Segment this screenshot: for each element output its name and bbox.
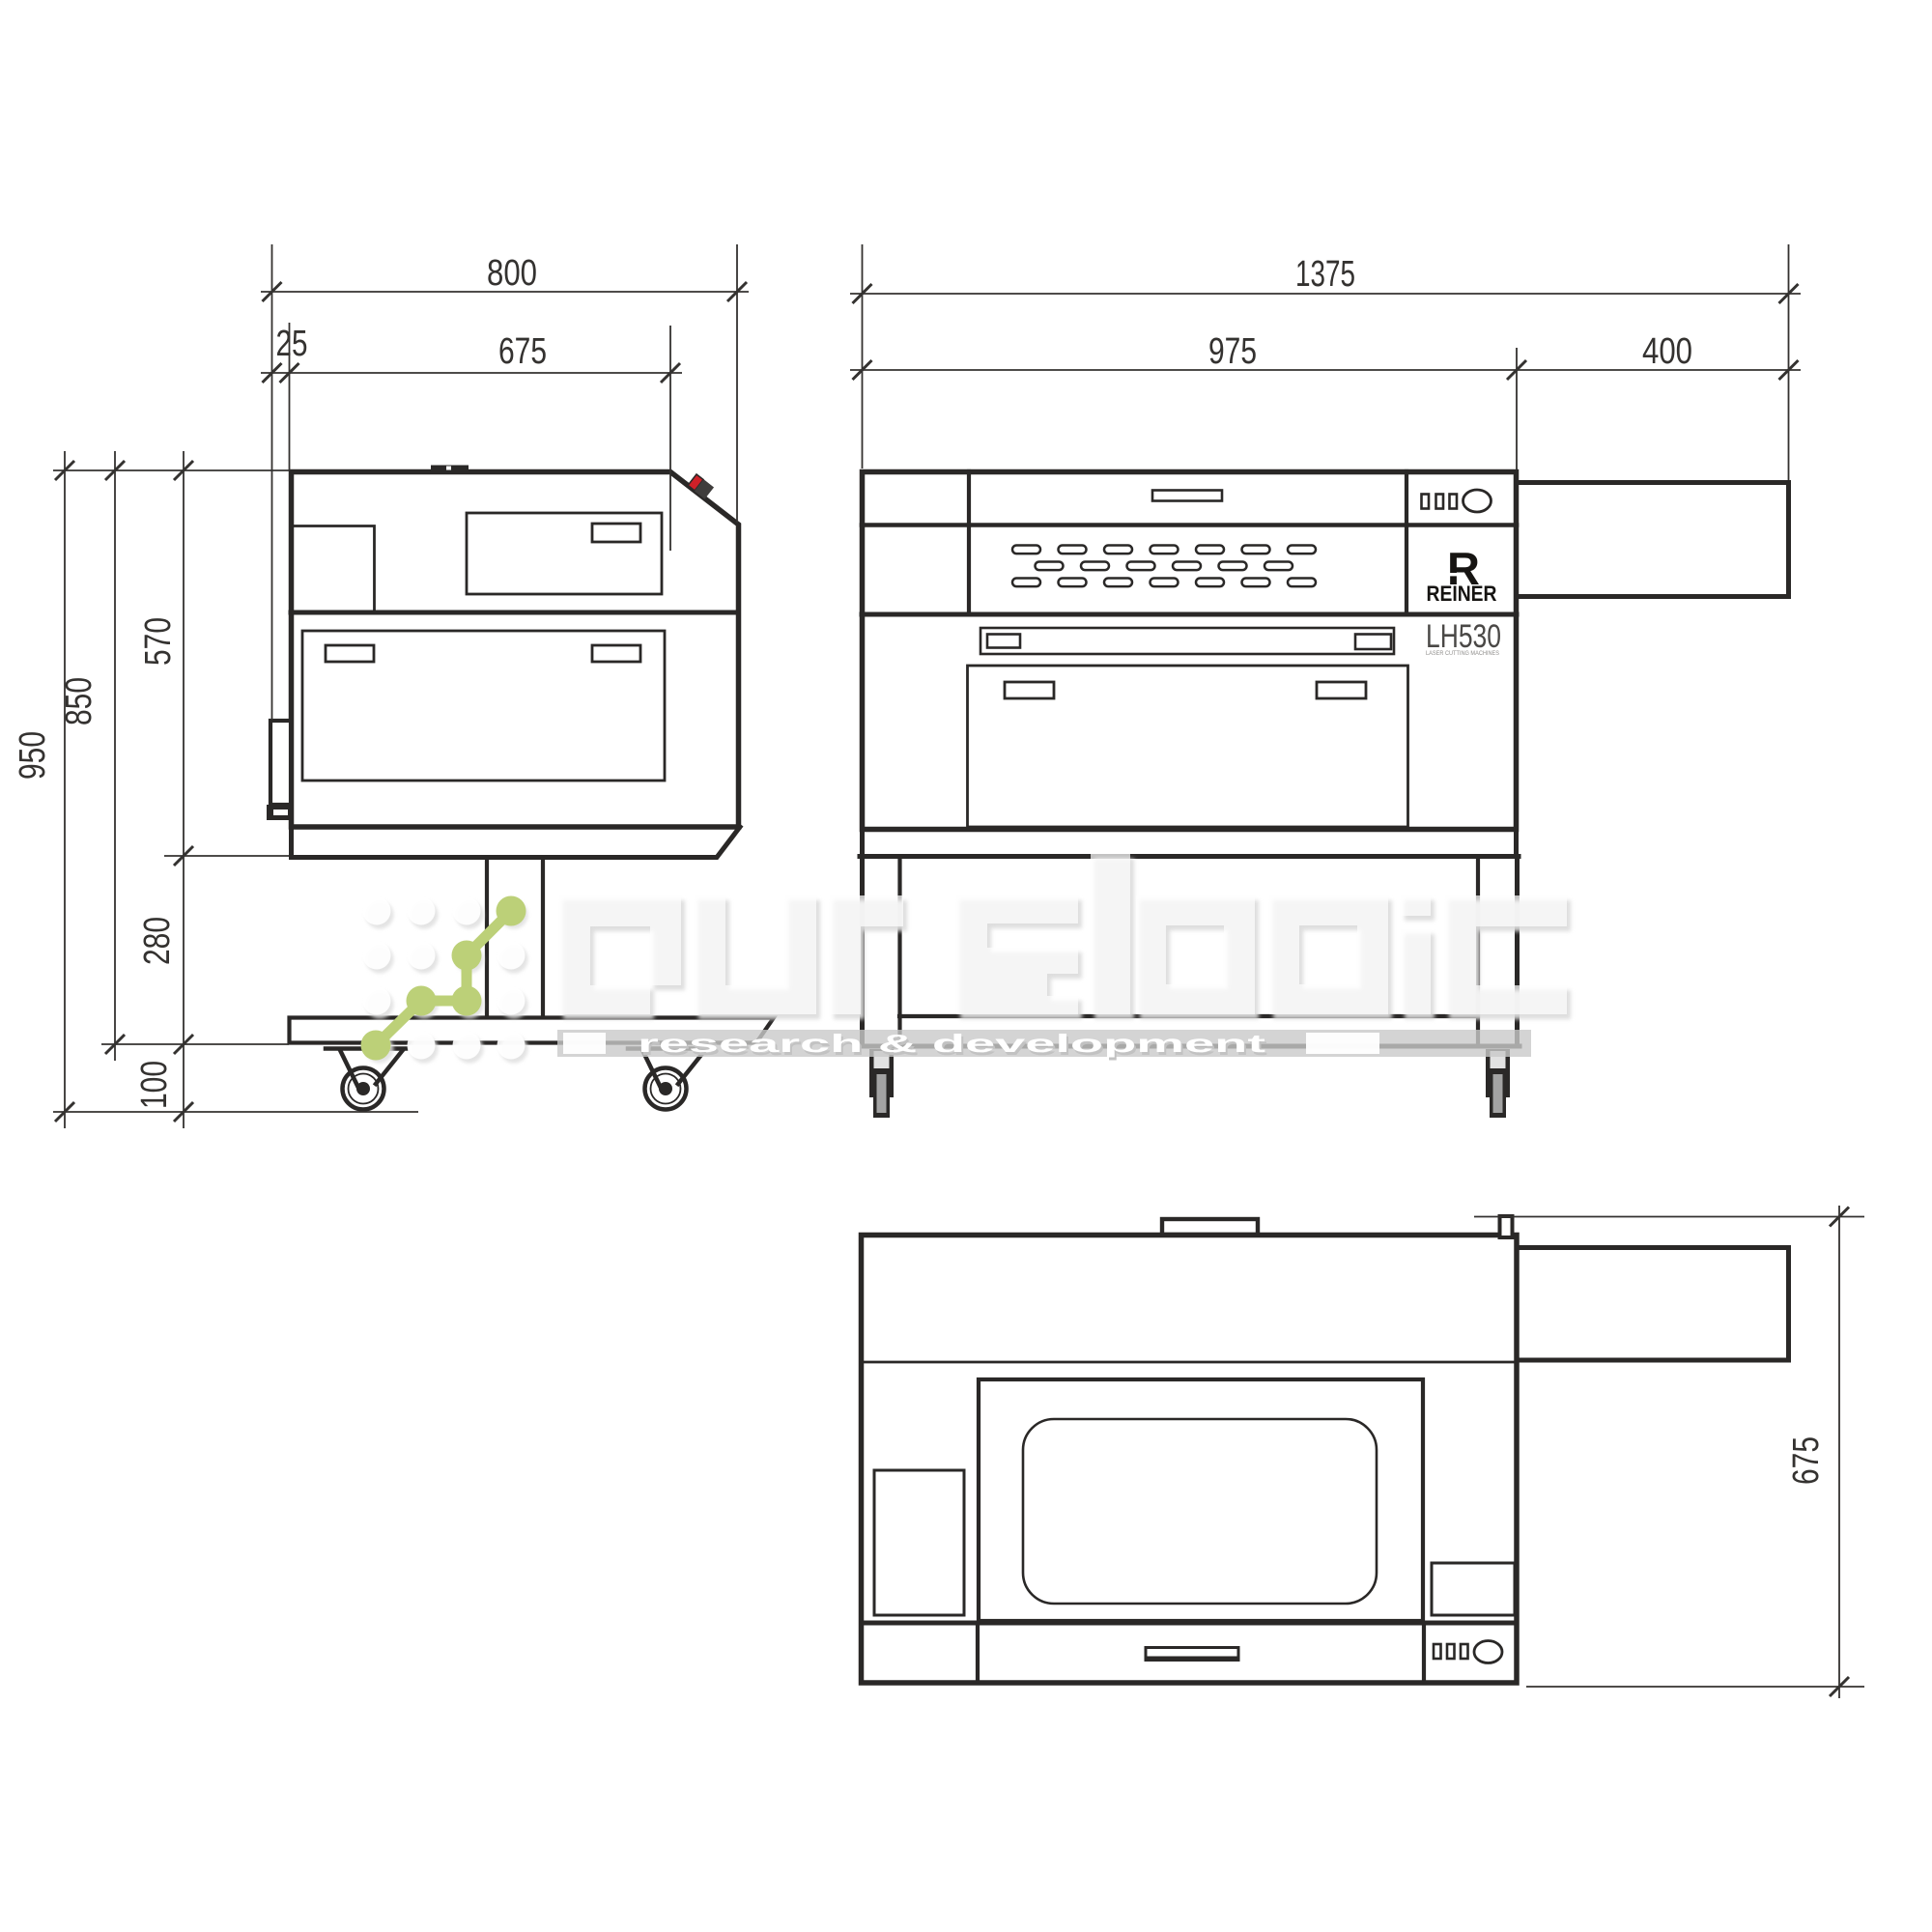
svg-text:975: 975 [1208, 331, 1257, 372]
svg-text:1375: 1375 [1295, 254, 1355, 295]
svg-text:research & development: research & development [638, 1029, 1266, 1058]
svg-text:280: 280 [137, 917, 178, 965]
svg-text:675: 675 [1786, 1436, 1827, 1485]
svg-text:570: 570 [138, 617, 179, 666]
svg-text:REINER: REINER [1427, 582, 1497, 606]
svg-text:800: 800 [487, 253, 537, 294]
svg-text:100: 100 [134, 1061, 175, 1109]
svg-text:850: 850 [59, 677, 99, 725]
svg-text:LASER CUTTING MACHINES: LASER CUTTING MACHINES [1426, 650, 1500, 657]
svg-text:675: 675 [498, 331, 547, 372]
svg-text:25: 25 [276, 324, 308, 364]
svg-text:400: 400 [1642, 331, 1692, 372]
svg-text:950: 950 [13, 731, 53, 780]
